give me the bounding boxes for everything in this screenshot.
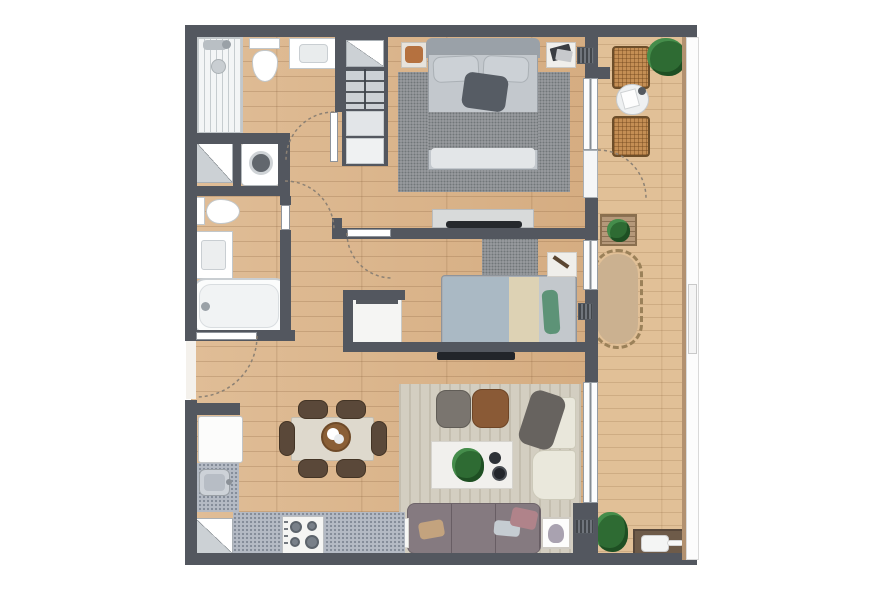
rug-bedroom-2 [482, 238, 538, 276]
shower-tray [196, 37, 243, 134]
burner-bottom-right [305, 535, 319, 549]
dining-chair-top-left [298, 400, 328, 419]
wall-joint-mid [578, 303, 593, 320]
wardrobe-cabinet [346, 40, 384, 67]
fridge [198, 416, 243, 463]
bathtub-inner [199, 284, 279, 328]
door-leaf-bathroom-1 [330, 112, 338, 162]
wardrobe-hanging-rail [346, 69, 384, 109]
bed-single-blanket [509, 277, 539, 345]
wall-joint-top [577, 47, 594, 64]
nightstand-tray [405, 46, 423, 63]
tv-bedroom-1 [446, 221, 522, 228]
wall-joint-bottom [575, 519, 594, 534]
wardrobe-shelf-bottom [346, 138, 384, 164]
laundry-cabinet [194, 140, 233, 183]
burner-top-right [307, 521, 317, 531]
wall-right-mid-a [585, 198, 598, 240]
bed-single-green-pillow [541, 289, 560, 334]
kitchen-sink-basin [204, 474, 225, 491]
armchair-bottom [532, 450, 576, 500]
wall-left-upper [185, 25, 197, 340]
kitchen-faucet [226, 479, 232, 485]
dining-chair-bottom-left [298, 459, 328, 478]
wall-bottom [185, 553, 697, 565]
door-leaf-corridor [281, 205, 290, 230]
terrace-plant-bottom [594, 512, 628, 552]
bathroom-2-basin [201, 240, 226, 270]
pouf-gray [436, 390, 471, 428]
tv-living-room [437, 352, 515, 360]
stove-knobs [284, 521, 288, 549]
framed-artwork-motif [548, 524, 564, 543]
pouf-brown-leather [472, 389, 509, 428]
wall-laundry-divider [233, 140, 241, 186]
window-bedroom-1 [583, 78, 598, 150]
terrace-door-bedroom-1 [583, 150, 598, 198]
shower-head [222, 40, 231, 49]
dining-chair-left [279, 421, 295, 456]
dining-plate-b [334, 434, 344, 444]
burner-top-left [290, 521, 302, 533]
bathroom-1-basin [299, 44, 328, 63]
closet-door-track [356, 300, 398, 304]
window-bedroom-2 [583, 240, 598, 290]
railing-handle [688, 284, 697, 354]
bed-double-throw-pillow [461, 71, 510, 113]
terrace-chair-bottom [612, 116, 650, 157]
terrace-basin [641, 535, 669, 552]
wall-laundry-bottom [185, 186, 290, 196]
bed-double-foot-blanket [431, 148, 535, 168]
terrace-plant-top [647, 38, 686, 76]
shower-drain [211, 59, 226, 74]
wall-bedroom-2-bottom [343, 342, 585, 352]
rug-terrace-oval [597, 254, 638, 344]
bed-double-blanket [428, 112, 538, 150]
dining-chair-bottom-right [336, 459, 366, 478]
coffee-table-bowl-small [489, 452, 501, 464]
wardrobe-shelf-top [346, 111, 384, 136]
wall-bathroom-2-right-a [280, 196, 291, 205]
burner-bottom-left [290, 537, 300, 547]
sliding-door-living [583, 382, 598, 503]
door-leaf-entry [196, 332, 257, 340]
entry-opening [186, 341, 196, 399]
washer-drum [249, 151, 273, 175]
toilet-1-tank [249, 38, 280, 49]
kitchen-cabinet-corner [195, 518, 233, 554]
closet-bedroom-2 [352, 299, 402, 345]
terrace-plant-potted [607, 219, 630, 242]
wall-top [185, 25, 697, 37]
coffee-table-bowl-large [492, 466, 507, 481]
coffee-table-plant [452, 448, 484, 482]
dining-chair-top-right [336, 400, 366, 419]
terrace-mug [638, 87, 646, 95]
door-leaf-bedroom-2 [347, 229, 391, 237]
wall-kitchen-stub [185, 403, 240, 415]
bed-single-duvet [443, 277, 509, 345]
stove [282, 516, 324, 554]
floor-plan-image [0, 0, 890, 600]
dining-chair-right [371, 421, 387, 456]
wall-bathroom-2-right-b [280, 230, 291, 340]
terrace-chair-top [612, 46, 650, 89]
wall-left-lower [185, 400, 197, 565]
bathtub-faucet [201, 302, 210, 311]
